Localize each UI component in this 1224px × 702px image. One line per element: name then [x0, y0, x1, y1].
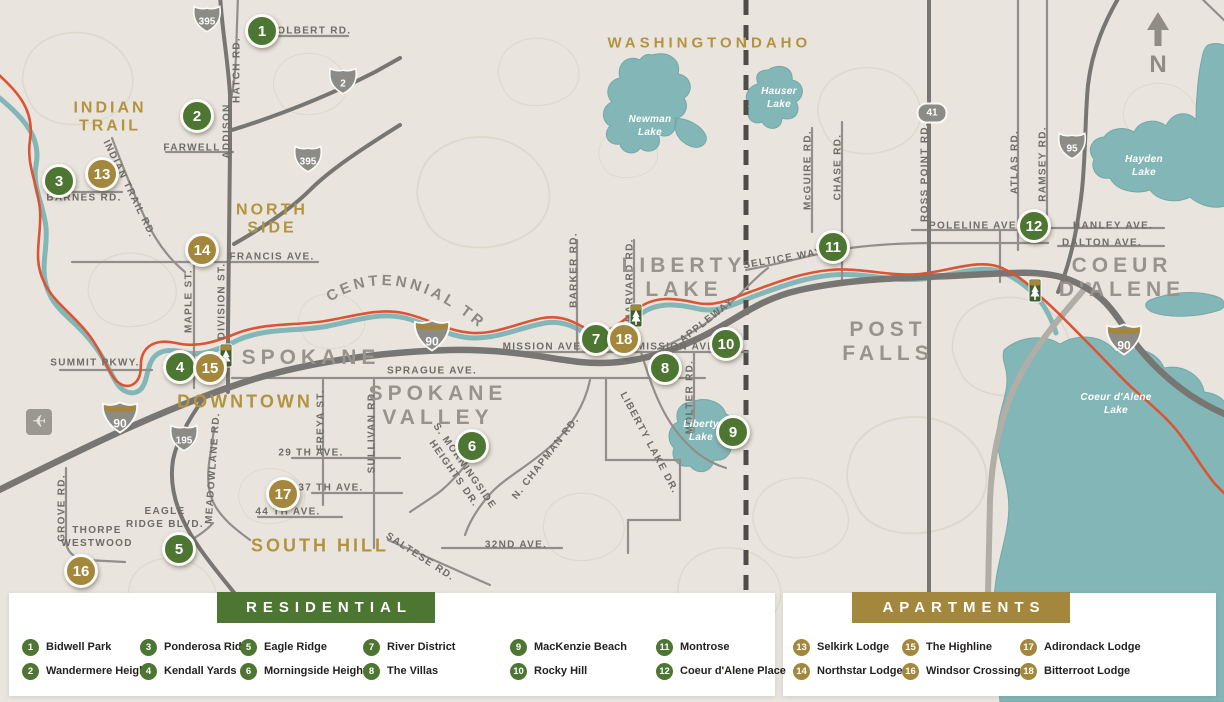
legend-num: 15 — [902, 639, 919, 656]
road-label-29th-ave: 29 TH AVE. — [278, 447, 343, 460]
legend-label: Northstar Lodge — [817, 665, 903, 677]
legend-num: 18 — [1020, 663, 1037, 680]
road-label-eagle-ridge-blvd: EAGLE RIDGE BLVD. — [126, 505, 204, 531]
legend-num: 3 — [140, 639, 157, 656]
legend-label: Adirondack Lodge — [1044, 641, 1141, 653]
road-label-hanley-ave: HANLEY AVE. — [1073, 220, 1153, 233]
map-marker-9[interactable]: 9 — [716, 415, 750, 449]
road-label-francis-ave: FRANCIS AVE. — [229, 251, 314, 264]
map-marker-2[interactable]: 2 — [180, 99, 214, 133]
legend-num: 8 — [363, 663, 380, 680]
road-label-farwell: FARWELL — [163, 142, 220, 155]
legend-item-coeur-dalene-place: 12 Coeur d'Alene Place — [656, 662, 786, 680]
lake-label-hayden: Hayden Lake — [1125, 153, 1163, 179]
i-90-shield-center: 90 — [413, 320, 451, 357]
legend-label: Coeur d'Alene Place — [680, 665, 786, 677]
map-marker-11[interactable]: 11 — [816, 230, 850, 264]
road-label-ramsey-rd: RAMSEY RD. — [1037, 126, 1050, 202]
road-label-division-st: DIVISION ST. — [216, 263, 229, 340]
legend-item-adirondack-lodge: 17 Adirondack Lodge — [1020, 638, 1141, 656]
map-marker-4[interactable]: 4 — [163, 350, 197, 384]
legend-num: 10 — [510, 663, 527, 680]
legend-item-kendall-yards: 4 Kendall Yards — [140, 662, 237, 680]
legend-label: Eagle Ridge — [264, 641, 327, 653]
legend-num: 11 — [656, 639, 673, 656]
road-label-mcguire-rd: McGUIRE RD. — [802, 130, 815, 210]
legend-label: MacKenzie Beach — [534, 641, 627, 653]
legend-item-mackenzie-beach: 9 MacKenzie Beach — [510, 638, 627, 656]
region-label-liberty-lake: LIBERTY LAKE — [622, 254, 747, 302]
map-marker-14[interactable]: 14 — [185, 233, 219, 267]
legend-label: The Highline — [926, 641, 992, 653]
road-label-barker-rd: BARKER RD. — [568, 232, 581, 308]
legend-label: Bidwell Park — [46, 641, 111, 653]
map-marker-1[interactable]: 1 — [245, 14, 279, 48]
map-marker-5[interactable]: 5 — [162, 532, 196, 566]
legend-item-morningside-heights: 6 Morningside Heights — [240, 662, 373, 680]
legend-num: 12 — [656, 663, 673, 680]
lake-label-newman: Newman Lake — [629, 113, 672, 139]
legend-label: Rocky Hill — [534, 665, 587, 677]
legend-num: 1 — [22, 639, 39, 656]
legend-label: Selkirk Lodge — [817, 641, 889, 653]
legend-num: 13 — [793, 639, 810, 656]
legend-item-eagle-ridge: 5 Eagle Ridge — [240, 638, 327, 656]
region-label-south-hill: SOUTH HILL — [251, 536, 389, 557]
legend-num: 2 — [22, 663, 39, 680]
region-label-post-falls: POST FALLS — [842, 318, 934, 366]
compass-n-label: N — [1140, 54, 1176, 76]
legend-label: Kendall Yards — [164, 665, 237, 677]
legend-label: Morningside Heights — [264, 665, 373, 677]
centennial-trail-label: CENTENNIAL TRAIL — [0, 0, 489, 332]
road-label-ross-point-rd: ROSS POINT RD. — [919, 122, 932, 222]
road-label-atlas-rd: ATLAS RD. — [1009, 130, 1022, 194]
legend-num: 17 — [1020, 639, 1037, 656]
lake-label-liberty: Liberty Lake — [683, 418, 718, 444]
road-label-maple-st: MAPLE ST. — [183, 269, 196, 333]
lake-label-coeur-dalene: Coeur d'Alene Lake — [1080, 391, 1151, 417]
region-label-idaho: IDAHO — [743, 34, 811, 51]
road-label-mission-ave-east: MISSION AVE. — [637, 341, 720, 354]
map-marker-16[interactable]: 16 — [64, 554, 98, 588]
legend-item-the-highline: 15 The Highline — [902, 638, 992, 656]
region-label-coeur-dalene: COEUR D'ALENE — [1059, 254, 1185, 302]
region-label-downtown: DOWNTOWN — [177, 392, 313, 413]
region-label-washington: WASHINGTON — [607, 34, 750, 51]
legend-item-the-villas: 8 The Villas — [363, 662, 438, 680]
region-label-spokane-valley: SPOKANE VALLEY — [369, 382, 508, 430]
legend-item-rocky-hill: 10 Rocky Hill — [510, 662, 587, 680]
park-tree-icon — [1029, 279, 1042, 308]
road-label-poleline-ave: POLELINE AVE. — [929, 220, 1021, 233]
legend-label: The Villas — [387, 665, 438, 677]
map-marker-12[interactable]: 12 — [1017, 209, 1051, 243]
road-label-sprague-ave: SPRAGUE AVE. — [387, 365, 477, 378]
legend-num: 16 — [902, 663, 919, 680]
legend-label: Montrose — [680, 641, 730, 653]
legend-item-bidwell-park: 1 Bidwell Park — [22, 638, 111, 656]
north-arrow-icon — [1145, 12, 1171, 48]
map-marker-17[interactable]: 17 — [266, 477, 300, 511]
road-label-colbert-rd: COLBERT RD. — [269, 25, 352, 38]
legend-num: 6 — [240, 663, 257, 680]
legend-label: River District — [387, 641, 455, 653]
legend-item-ponderosa-ridge: 3 Ponderosa Ridge — [140, 638, 254, 656]
road-label-thorpe-westwood: THORPE WESTWOOD — [61, 524, 133, 550]
residential-legend-header: RESIDENTIAL — [217, 592, 435, 623]
region-label-north-side: NORTH SIDE — [236, 202, 308, 239]
map-marker-15[interactable]: 15 — [193, 351, 227, 385]
legend-label: Windsor Crossing — [926, 665, 1021, 677]
map-marker-6[interactable]: 6 — [455, 429, 489, 463]
region-label-indian-trail: INDIAN TRAIL — [73, 100, 146, 137]
map-marker-10[interactable]: 10 — [709, 327, 743, 361]
legend-item-windsor-crossing: 16 Windsor Crossing — [902, 662, 1021, 680]
legend-item-river-district: 7 River District — [363, 638, 455, 656]
state-41-shield: 41 — [917, 103, 948, 124]
legend-num: 9 — [510, 639, 527, 656]
road-label-mission-ave-west: MISSION AVE. — [503, 341, 586, 354]
road-label-hatch-rd: HATCH RD. — [231, 37, 244, 103]
us-395-shield-north: 395 — [191, 4, 223, 38]
legend-num: 5 — [240, 639, 257, 656]
i-90-shield-east: 90 — [1105, 324, 1143, 361]
legend-item-northstar-lodge: 14 Northstar Lodge — [793, 662, 903, 680]
us-95-shield: 95 — [1056, 131, 1088, 165]
map-marker-13[interactable]: 13 — [85, 157, 119, 191]
us-395-shield-south: 395 — [292, 144, 324, 178]
us-2-shield: 2 — [327, 66, 359, 100]
legend-label: Bitterroot Lodge — [1044, 665, 1130, 677]
map-marker-18[interactable]: 18 — [607, 322, 641, 356]
compass-north: N — [1140, 12, 1176, 76]
airport-icon: ✈ — [26, 409, 52, 435]
road-label-summit-pkwy: SUMMIT PKWY. — [50, 357, 140, 370]
legend-num: 14 — [793, 663, 810, 680]
road-label-freya-st: FREYA ST. — [315, 389, 328, 451]
legend-item-selkirk-lodge: 13 Selkirk Lodge — [793, 638, 889, 656]
map-marker-3[interactable]: 3 — [42, 164, 76, 198]
legend-item-wandermere-heights: 2 Wandermere Heights — [22, 662, 156, 680]
road-label-chase-rd: CHASE RD. — [832, 134, 845, 201]
road-label-dalton-ave: DALTON AVE. — [1062, 237, 1142, 250]
region-label-spokane: SPOKANE — [242, 346, 381, 370]
lake-label-hauser: Hauser Lake — [761, 85, 797, 111]
apartments-legend-header: APARTMENTS — [852, 592, 1070, 623]
us-195-shield: 195 — [168, 423, 200, 457]
road-label-addison: ADDISON — [221, 103, 234, 158]
road-label-37th-ave: 37 TH AVE. — [298, 482, 363, 495]
legend-num: 7 — [363, 639, 380, 656]
road-label-32nd-ave: 32ND AVE. — [485, 539, 547, 552]
legend-num: 4 — [140, 663, 157, 680]
legend-item-bitterroot-lodge: 18 Bitterroot Lodge — [1020, 662, 1130, 680]
map-marker-8[interactable]: 8 — [648, 351, 682, 385]
community-map: CENTENNIAL TRAIL INDIAN TRAIL NORTH SIDE… — [0, 0, 1224, 702]
i-90-shield-west: 90 — [101, 402, 139, 439]
legend-item-montrose: 11 Montrose — [656, 638, 730, 656]
